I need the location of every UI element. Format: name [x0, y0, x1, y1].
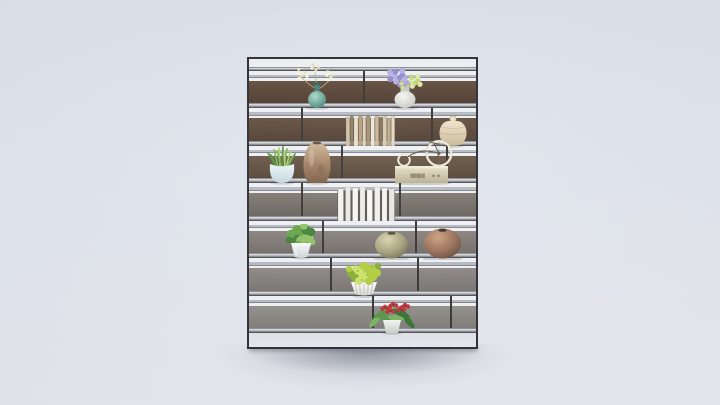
bush-plant: [282, 224, 320, 260]
chartreuse-bouquet: [343, 260, 385, 298]
shelf-divider: [415, 221, 417, 254]
hydrangea-vase-graphic: [377, 62, 433, 110]
chartreuse-bouquet-graphic: [343, 260, 385, 298]
shelf-divider: [399, 183, 401, 216]
shelf-divider: [363, 71, 365, 104]
brown-urn-vase-graphic: [299, 141, 335, 185]
floor-shadow: [210, 344, 520, 392]
red-flower-plant: [366, 295, 418, 335]
celadon-flower-vase: [289, 62, 345, 110]
copper-vase: [421, 226, 464, 260]
bush-plant-graphic: [282, 224, 320, 260]
floor-shadow: [240, 346, 490, 376]
shelf-back-panel: [249, 306, 476, 330]
shelf-bottom-opening: [249, 333, 476, 347]
grass-plant-graphic: [264, 145, 300, 185]
shelf-divider: [301, 183, 303, 216]
shelf-divider: [431, 108, 433, 141]
shelf-top-gap: [249, 59, 476, 67]
olive-glass-vase: [372, 229, 411, 260]
shelf-section: [249, 71, 476, 109]
white-books-row: [337, 186, 396, 221]
tan-books-row: [345, 115, 396, 146]
copper-vase-graphic: [421, 226, 464, 260]
render-viewport: [0, 0, 720, 405]
shelf-divider: [450, 296, 452, 329]
shelf-divider: [322, 221, 324, 254]
red-flower-plant-graphic: [366, 295, 418, 335]
celadon-flower-vase-graphic: [289, 62, 345, 110]
white-books-row-graphic: [337, 186, 396, 221]
shelf-divider: [417, 258, 419, 291]
shelf-divider: [330, 258, 332, 291]
hydrangea-vase: [377, 62, 433, 110]
shelf-divider: [341, 146, 343, 179]
olive-glass-vase-graphic: [372, 229, 411, 260]
grass-plant: [264, 145, 300, 185]
bicycle-radio: [395, 139, 453, 185]
shelf-back-rail: [249, 300, 476, 304]
bicycle-radio-graphic: [395, 139, 453, 185]
tan-books-row-graphic: [345, 115, 396, 146]
shelf-section: [249, 296, 476, 334]
shelf-divider: [301, 108, 303, 141]
brown-urn-vase: [299, 141, 335, 185]
